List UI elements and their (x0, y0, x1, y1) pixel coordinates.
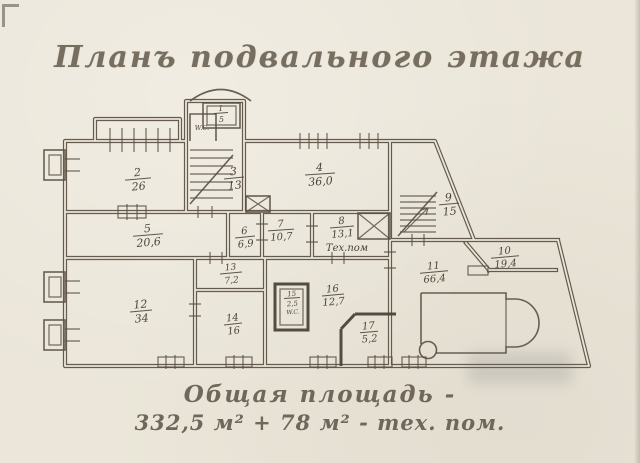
room-area: 20,6 (135, 235, 162, 250)
room-number: 8 (338, 216, 345, 228)
room-number: 3 (229, 165, 237, 179)
room-area: 12,7 (322, 296, 346, 309)
room-label-2: 2 26 (124, 165, 152, 194)
room-area: 36,0 (308, 174, 333, 189)
caption-total-area-line1: Общая площадь - (0, 381, 640, 408)
room-area: 6,9 (237, 238, 255, 251)
window-well-left-middle (44, 272, 80, 302)
room-area: 5,2 (361, 333, 378, 345)
window-well-left-top (44, 150, 80, 180)
room-area: 34 (134, 311, 149, 325)
room-label-4: 4 36,0 (304, 160, 336, 189)
room-number: 11 (427, 260, 441, 272)
scanned-floor-plan-page: Планъ подвального этажа (0, 0, 640, 463)
caption-total-area-line2: 332,5 м² + 78 м² - тех. пом. (0, 410, 640, 435)
room-number: 16 (326, 283, 340, 295)
stairs-room3 (190, 150, 233, 204)
room-number: 4 (315, 161, 324, 175)
room-label-11: 11 66,4 (419, 260, 449, 286)
wc-label-room15: W.C. (286, 309, 300, 317)
room-area: 13,1 (331, 228, 354, 241)
room-area: 2,5 (286, 300, 299, 309)
room-area: 15 (442, 204, 457, 218)
room-label-5: 5 20,6 (132, 221, 164, 251)
room-number: 14 (226, 312, 240, 324)
room-area: 7,2 (224, 275, 239, 286)
shaft-x-box-room8 (358, 213, 390, 239)
room-label-8: 8 13,1 (329, 215, 355, 241)
room-number: 5 (143, 222, 151, 236)
room-area: 16 (227, 325, 241, 337)
room-number: 12 (133, 297, 148, 311)
room-label-13: 13 7,2 (219, 262, 243, 287)
room-area: 66,4 (423, 273, 446, 286)
room-number: 13 (224, 263, 237, 274)
scan-smudge (468, 352, 572, 384)
room-number: 10 (498, 245, 512, 257)
room-label-15: 15 2,5 W.C. (283, 289, 301, 316)
room-label-16: 16 12,7 (321, 283, 346, 309)
scan-corner-mark (2, 4, 19, 27)
room-number: 15 (287, 290, 297, 299)
room-number: 6 (241, 226, 249, 238)
pool-structure (420, 293, 540, 359)
room-number: 17 (362, 320, 376, 332)
room-label-14: 14 16 (223, 312, 243, 338)
room-label-7: 7 10,7 (267, 218, 295, 244)
room-number: 1 (218, 104, 224, 113)
room-area: 10,7 (270, 231, 294, 244)
room-label-6: 6 6,9 (234, 225, 256, 251)
room-label-17: 17 5,2 (359, 320, 379, 345)
room-area: 19,4 (494, 258, 517, 271)
room-number: 9 (444, 191, 452, 205)
room-label-10: 10 19,4 (490, 245, 520, 271)
room-label-12: 12 34 (129, 297, 153, 326)
room-number: 2 (132, 166, 141, 180)
room-number: 7 (277, 219, 285, 230)
room-area: 26 (130, 179, 146, 193)
window-well-left-bottom (44, 320, 80, 350)
room-area: 13 (227, 178, 242, 192)
tech-room-label: Тех.пом (326, 243, 368, 254)
scan-edge-shadow (634, 0, 640, 463)
shaft-x-box-top (246, 196, 270, 212)
room-area: 5 (219, 115, 225, 124)
stairs-room9 (398, 192, 437, 236)
wc-label-stairwell: W.C. (195, 124, 209, 132)
